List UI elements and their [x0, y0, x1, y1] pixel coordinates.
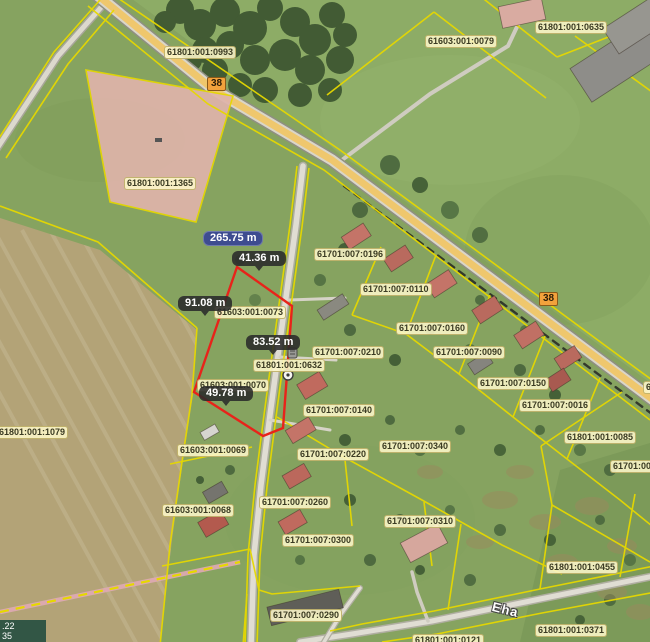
point-marker-icon	[283, 370, 293, 380]
coordinate-line-2: 35	[2, 631, 44, 641]
map-symbol-icon	[288, 348, 297, 358]
coordinate-readout: .22 35	[0, 620, 46, 642]
map-canvas[interactable]	[0, 0, 650, 642]
map-viewport[interactable]: 61801:001:099361603:001:007961801:001:06…	[0, 0, 650, 642]
coordinate-line-1: .22	[2, 621, 44, 631]
